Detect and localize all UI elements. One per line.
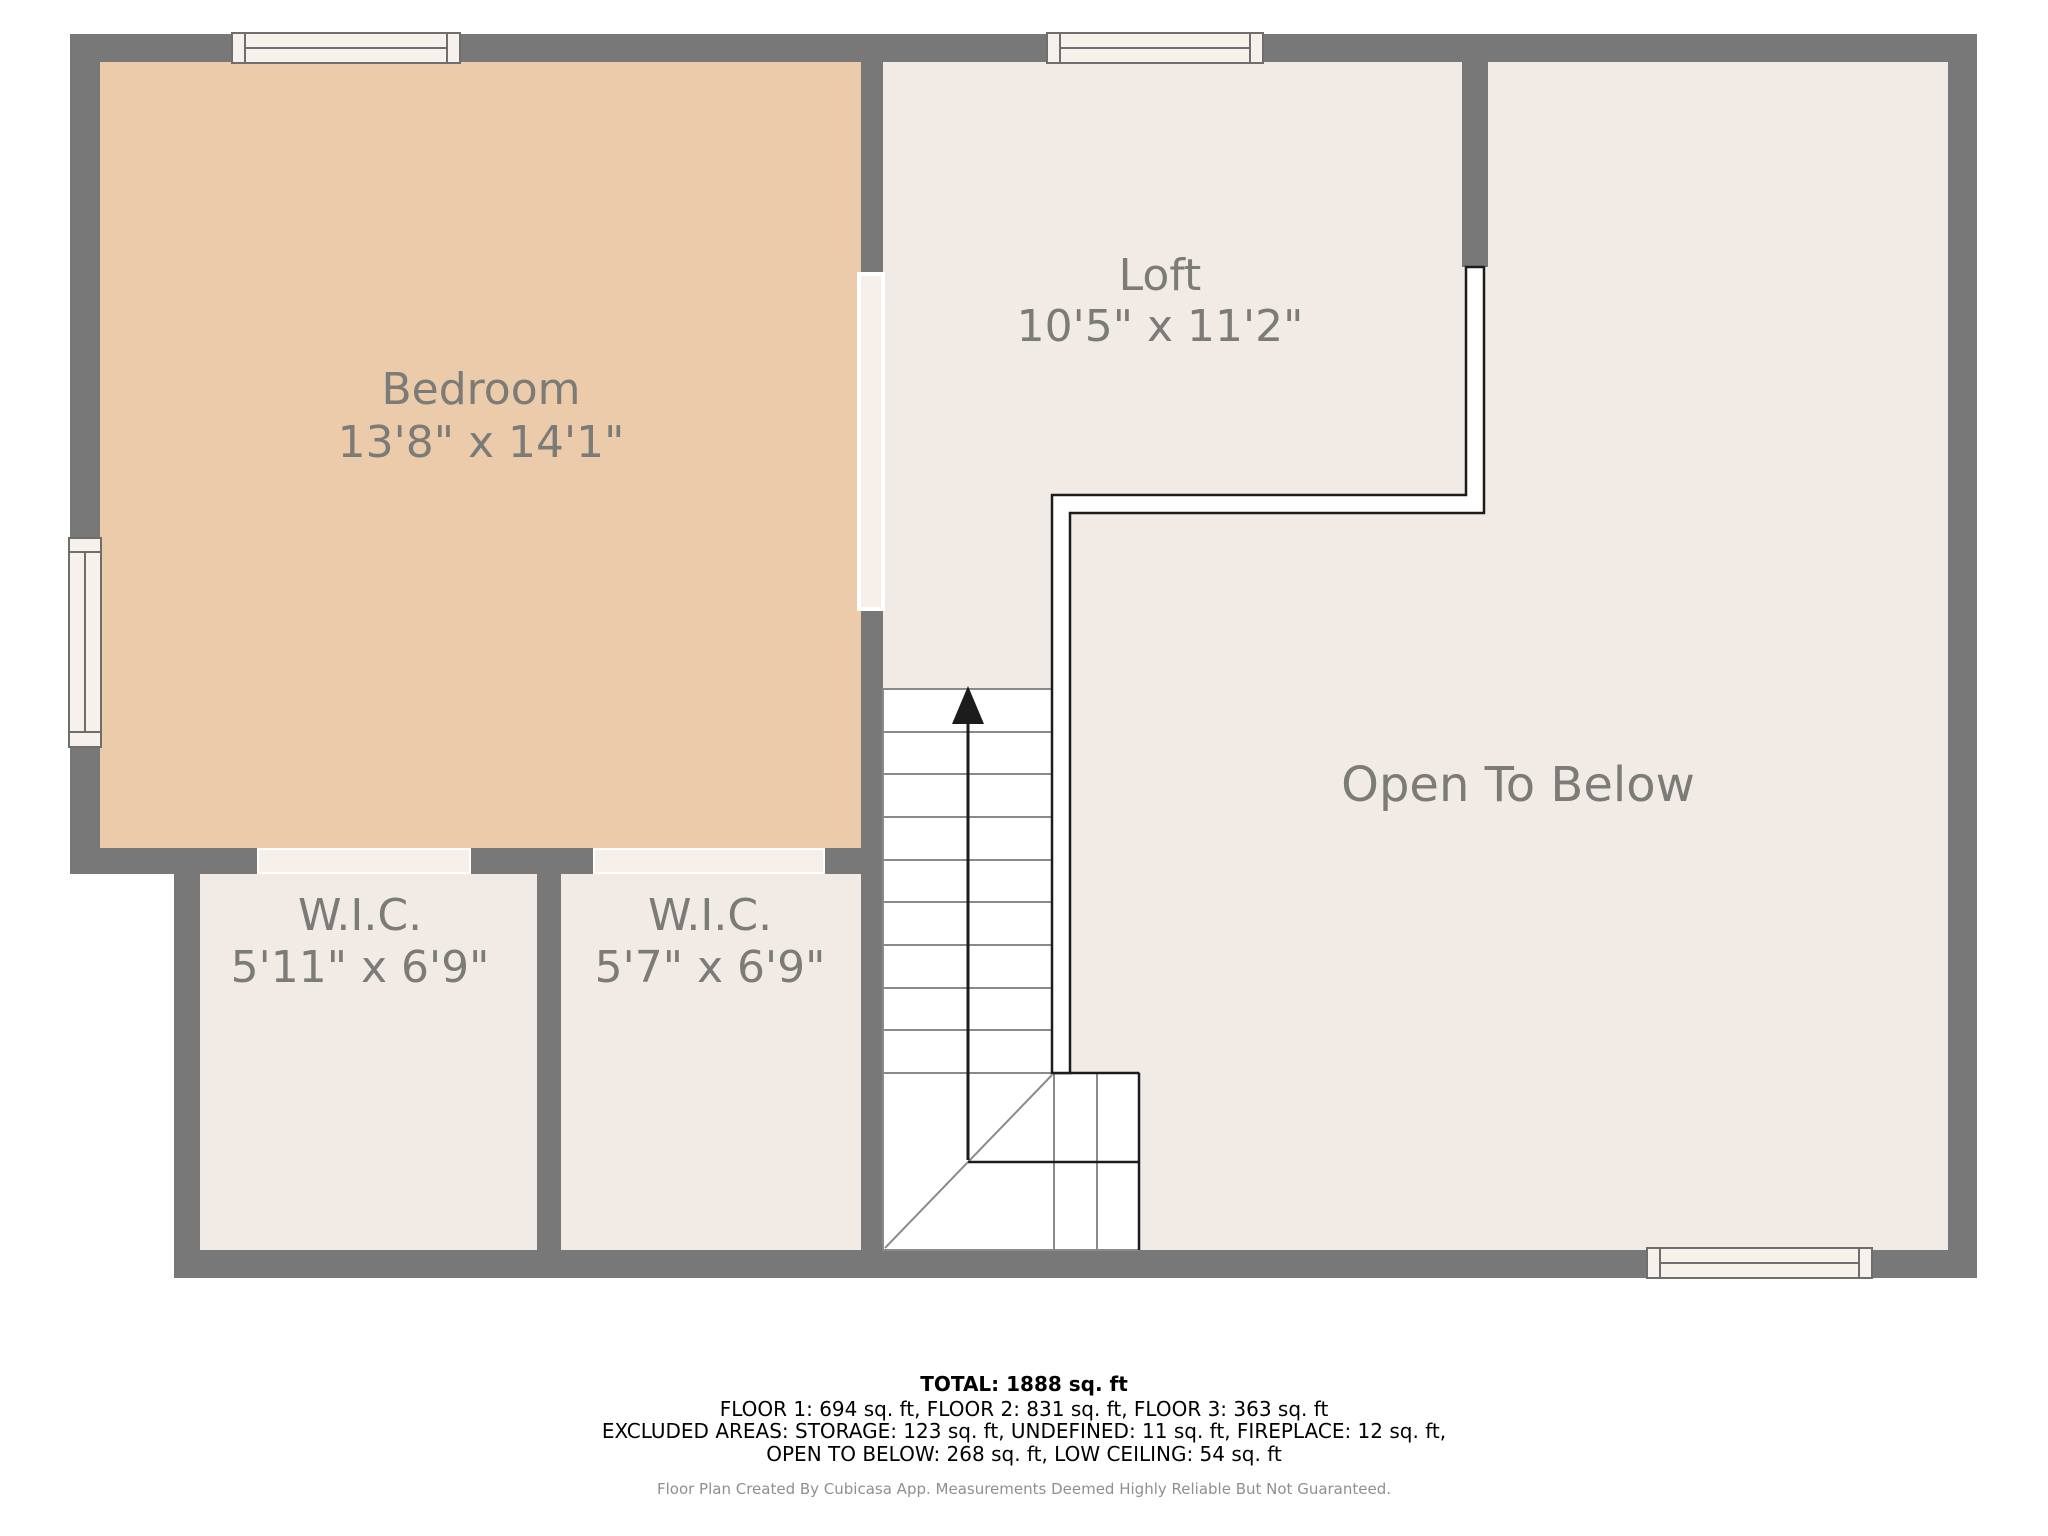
wall-loft-right	[1462, 62, 1488, 267]
excluded-areas-text-line2: OPEN TO BELOW: 268 sq. ft, LOW CEILING: …	[0, 1444, 2048, 1464]
wall-right	[1948, 34, 1977, 1278]
wic-left-dimensions: 5'11" x 6'9"	[231, 946, 490, 990]
wall-bedroom-stairs-lower	[861, 611, 883, 1250]
wall-wic-left-outer	[174, 848, 200, 1276]
loft-dimensions: 10'5" x 11'2"	[1017, 305, 1304, 349]
open-to-below-label: Open To Below	[1341, 761, 1695, 809]
wic-right-dimensions: 5'7" x 6'9"	[595, 946, 826, 990]
total-area-text: TOTAL: 1888 sq. ft	[0, 1374, 2048, 1394]
loft-label: Loft	[1119, 254, 1202, 298]
bedroom-label: Bedroom	[381, 368, 580, 412]
credit-text: Floor Plan Created By Cubicasa App. Meas…	[0, 1482, 2048, 1497]
bedroom-dimensions: 13'8" x 14'1"	[338, 421, 625, 465]
wic-left-door-opening	[258, 849, 470, 873]
floor-plan-drawing	[0, 0, 2048, 1536]
wall-bedroom-loft-upper	[861, 62, 883, 278]
excluded-areas-text-line1: EXCLUDED AREAS: STORAGE: 123 sq. ft, UND…	[0, 1421, 2048, 1441]
wic-right-door-opening	[594, 849, 824, 873]
floor-plan-page: Bedroom 13'8" x 14'1" Loft 10'5" x 11'2"…	[0, 0, 2048, 1536]
floor-areas-text: FLOOR 1: 694 sq. ft, FLOOR 2: 831 sq. ft…	[0, 1399, 2048, 1419]
wic-left-label: W.I.C.	[298, 894, 422, 938]
wic-right-label: W.I.C.	[648, 894, 772, 938]
bedroom-loft-opening-inner	[861, 276, 881, 607]
wall-wic-divider	[537, 874, 561, 1250]
